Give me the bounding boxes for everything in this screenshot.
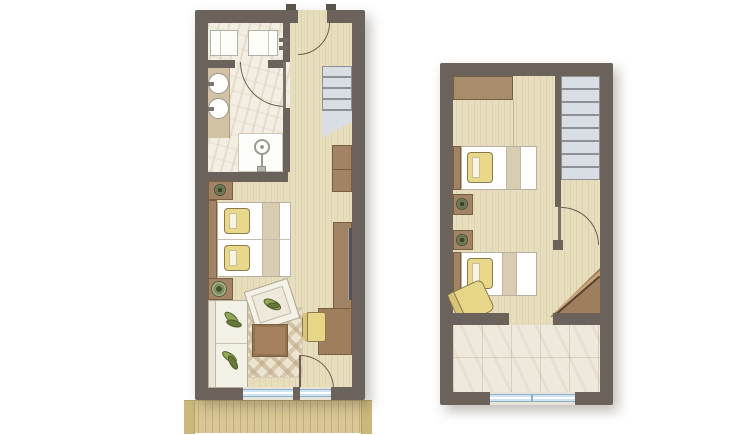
twin-beds: [217, 202, 291, 277]
bathroom-right-wall-upper: [283, 23, 290, 62]
blanket-runner: [502, 253, 517, 295]
wc-partition-stub-left: [208, 60, 235, 68]
potted-plant-icon: [211, 281, 227, 297]
bedside-lamp-1: [456, 198, 468, 210]
entry-door-opening: [298, 10, 327, 23]
faucet-bottom: [208, 107, 214, 111]
sofa-backrest: [209, 301, 216, 387]
pillow-bed-2: [224, 245, 250, 271]
shower-drain: [257, 166, 266, 172]
loggia-divider-wall-left: [440, 313, 509, 325]
stair-step-8: [561, 167, 600, 180]
stair-step-4: [322, 99, 352, 110]
balcony-side-right: [361, 401, 372, 434]
bedside-lamp: [214, 184, 226, 196]
pillow: [467, 152, 493, 183]
bedside-lamp-2: [456, 234, 468, 246]
desk-chair-back: [303, 313, 308, 340]
stair-step-3: [561, 102, 600, 115]
blanket-runner: [506, 147, 521, 189]
bed-divider: [218, 239, 290, 240]
window-mullion: [531, 394, 533, 402]
sofa-cushion-1b: [225, 318, 242, 329]
loggia-tiled-floor: [453, 325, 600, 392]
pillow-bed-1: [224, 208, 250, 234]
floor-seam: [513, 100, 514, 146]
headboard-rail: [208, 200, 217, 288]
stair-step-2: [561, 89, 600, 102]
toilet-left: [210, 30, 238, 56]
balcony-side-left: [184, 401, 195, 434]
plan-upper-level: [440, 63, 613, 405]
headboard-bed-1: [453, 146, 461, 190]
bathroom-right-wall-lower: [283, 108, 290, 172]
stair-step-3: [322, 88, 352, 99]
pillow-fold: [229, 250, 237, 266]
cistern-stub-top: [279, 38, 289, 42]
sofa-seat-divider: [216, 343, 247, 344]
window-left: [243, 389, 293, 397]
floor-plan-canvas: [0, 0, 754, 435]
armchair-cushion-dark: [267, 302, 280, 308]
sofa-cushion-2b: [226, 354, 240, 371]
desk-chair: [302, 312, 326, 342]
entry-door-jamb-left: [286, 4, 296, 10]
bathroom-door-leaf: [283, 62, 286, 108]
hall-wardrobe: [332, 145, 352, 192]
coffee-table: [252, 324, 288, 357]
single-bed-1: [461, 146, 537, 190]
pillow-fold: [472, 157, 480, 178]
stair-step-6: [561, 141, 600, 154]
shower-stem: [261, 155, 263, 166]
pillow-fold: [229, 213, 237, 229]
stair-step-1: [322, 66, 352, 77]
stair-step-7: [561, 154, 600, 167]
balcony-door-glazing: [300, 389, 331, 397]
wall-tv: [348, 228, 352, 300]
sofa: [208, 300, 248, 388]
cistern-stub-bottom: [279, 46, 289, 50]
wardrobe-divider: [333, 169, 351, 170]
plan-lower-level: [195, 10, 365, 400]
wardrobe: [453, 76, 513, 100]
faucet-top: [208, 82, 214, 86]
loggia-divider-wall-right: [553, 313, 613, 325]
stair-step-5: [561, 128, 600, 141]
stair-step-1: [561, 76, 600, 89]
stair-step-2: [322, 77, 352, 88]
shower-head-icon: [254, 139, 270, 155]
stair-step-4: [561, 115, 600, 128]
entry-door-jamb-right: [326, 4, 336, 10]
toilet-right: [248, 30, 278, 56]
balcony-deck: [184, 400, 372, 433]
partition-end-stub: [553, 240, 563, 250]
stair-partition-wall: [555, 76, 561, 207]
